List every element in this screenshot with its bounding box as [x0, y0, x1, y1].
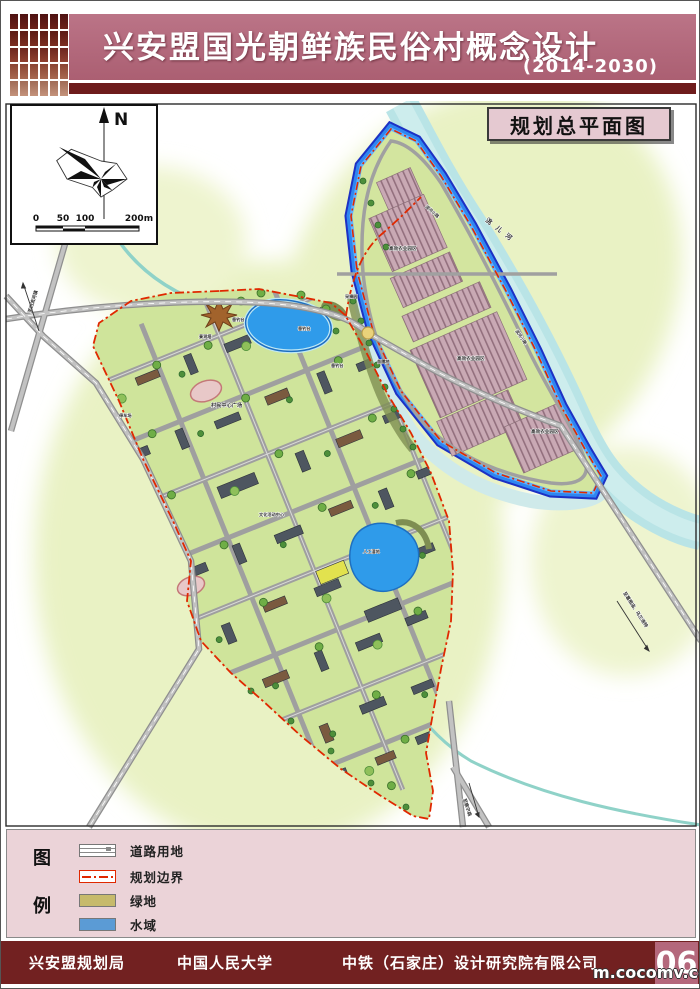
- legend-item-boundary: 规划边界: [79, 867, 184, 886]
- legend-heading-top: 图: [33, 844, 51, 870]
- svg-text:苗圃地: 苗圃地: [377, 358, 390, 365]
- plan-period: (2014-2030): [523, 56, 658, 77]
- svg-text:垂钓台: 垂钓台: [232, 316, 245, 323]
- legend-heading-bottom: 例: [33, 892, 51, 918]
- org-design-institute: 中铁（石家庄）设计研究院有限公司: [342, 952, 598, 973]
- legend-item-green: 绿地: [79, 891, 157, 910]
- svg-text:停车场: 停车场: [119, 412, 132, 419]
- svg-text:高效农业园区: 高效农业园区: [389, 245, 417, 252]
- svg-text:50: 50: [57, 214, 70, 224]
- svg-text:景观塔: 景观塔: [199, 333, 212, 340]
- title-band: 兴安盟国光朝鲜族民俗村概念设计 (2014-2030): [69, 14, 696, 80]
- plan-sheet: 洮儿河 滨河小路 滨河小路 高效农业园区 高效农业园区 高效农业园区 垂钓台 垂…: [0, 0, 700, 989]
- legend-item-water: 水域: [79, 915, 157, 934]
- svg-text:0: 0: [33, 214, 39, 224]
- bottom-strip: [1, 984, 700, 989]
- svg-text:垂钓台: 垂钓台: [298, 325, 311, 332]
- svg-text:高效农业园区: 高效农业园区: [457, 355, 485, 362]
- org-university: 中国人民大学: [177, 952, 273, 973]
- green-land-swatch-icon: [79, 894, 116, 907]
- legend-item-road: 道路用地: [79, 841, 184, 860]
- svg-text:100: 100: [76, 214, 95, 224]
- north-label: N: [114, 110, 128, 130]
- bridge-node: [362, 327, 374, 339]
- village-center-plaza-label: 村民中心广场: [211, 401, 242, 409]
- compass-box: N 0 50 100 200m: [11, 105, 157, 244]
- org-planning-bureau: 兴安盟规划局: [29, 952, 125, 973]
- svg-text:垂钓台: 垂钓台: [331, 362, 344, 369]
- legend-panel: 图 例 道路用地 规划边界 绿地 水域: [6, 829, 696, 938]
- svg-text:采摘园: 采摘园: [345, 293, 358, 300]
- svg-text:人工湿地: 人工湿地: [362, 548, 381, 555]
- water-swatch-icon: [79, 918, 116, 931]
- road-land-swatch-icon: [79, 844, 116, 857]
- svg-text:高效农业园区: 高效农业园区: [531, 428, 559, 435]
- svg-text:200m: 200m: [125, 214, 153, 224]
- svg-text:文化活动中心: 文化活动中心: [259, 511, 285, 518]
- header-accent-strip: [69, 83, 696, 94]
- drawing-title-box: 规划总平面图: [487, 107, 671, 141]
- institute-logo-icon: [10, 14, 68, 96]
- watermark: m.cocomv.com: [593, 963, 700, 982]
- sheet-header: 兴安盟国光朝鲜族民俗村概念设计 (2014-2030): [1, 1, 700, 101]
- planning-boundary-swatch-icon: [79, 870, 116, 883]
- drawing-title: 规划总平面图: [510, 110, 648, 139]
